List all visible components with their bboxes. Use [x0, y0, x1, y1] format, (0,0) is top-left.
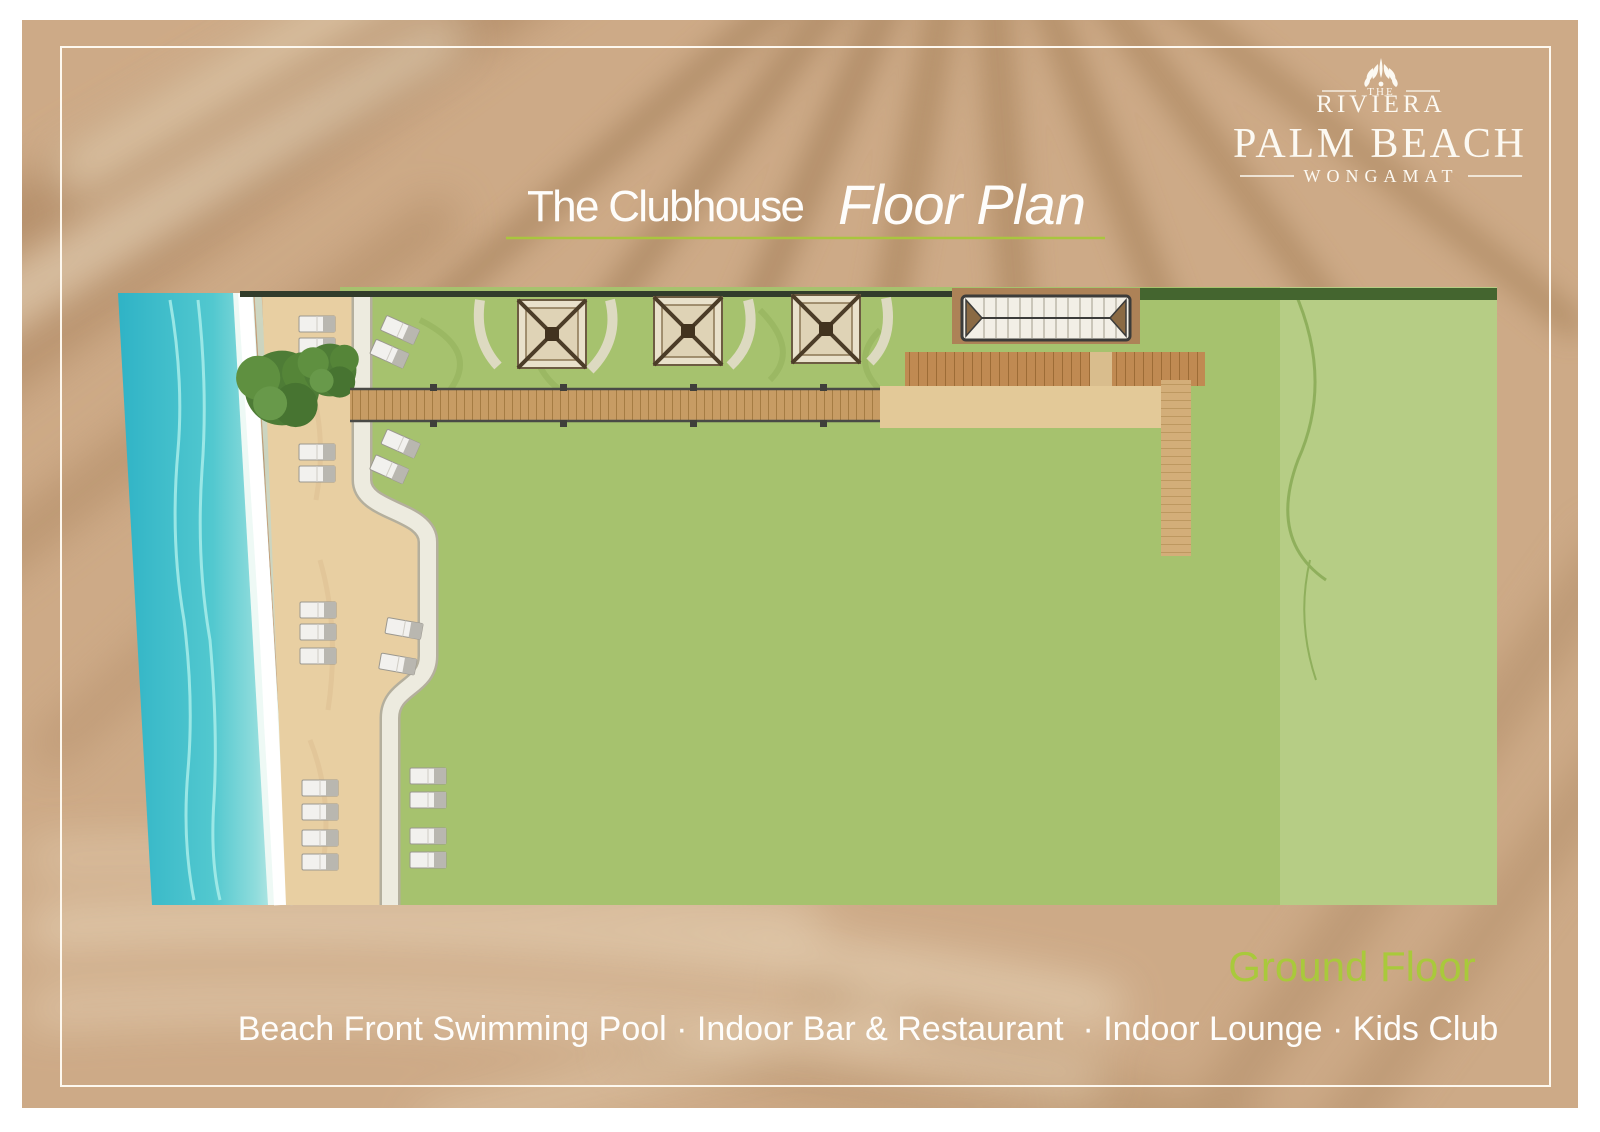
svg-text:Ground Floor: Ground Floor — [1228, 943, 1475, 990]
svg-text:The Clubhouse: The Clubhouse — [527, 182, 805, 231]
svg-text:RIVIERA: RIVIERA — [1316, 91, 1445, 118]
svg-text:Floor Plan: Floor Plan — [838, 173, 1086, 236]
svg-text:PALM BEACH: PALM BEACH — [1233, 121, 1527, 167]
svg-text:Beach Front Swimming Pool · In: Beach Front Swimming Pool · Indoor Bar &… — [238, 1010, 1499, 1048]
svg-text:WONGAMAT: WONGAMAT — [1304, 166, 1459, 186]
